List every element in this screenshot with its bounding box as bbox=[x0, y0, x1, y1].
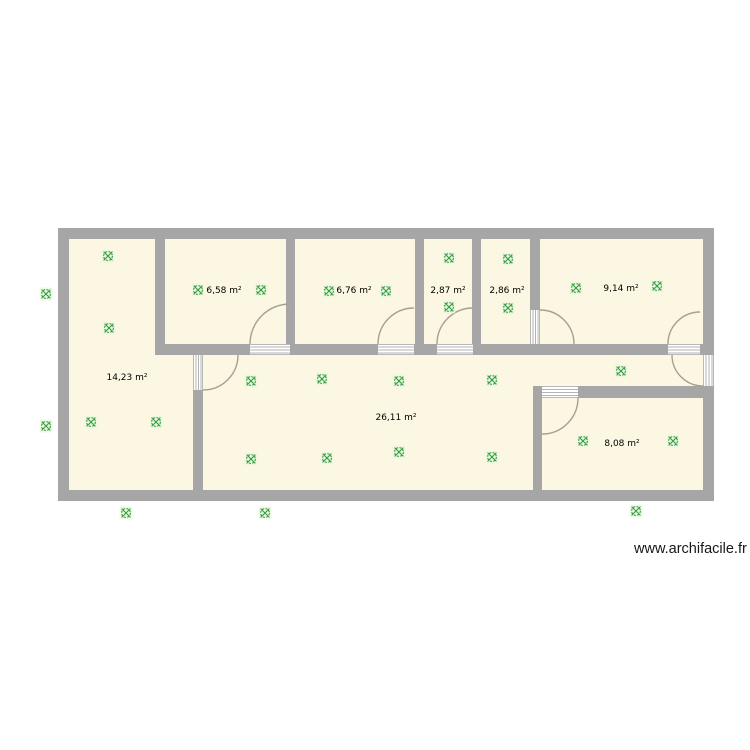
outlet-symbol[interactable] bbox=[486, 374, 499, 387]
outlet-symbol[interactable] bbox=[667, 435, 680, 448]
room-area-label: 2,87 m² bbox=[430, 286, 466, 296]
outlet-symbol[interactable] bbox=[316, 373, 329, 386]
outlet-symbol[interactable] bbox=[85, 416, 98, 429]
wall-corridor-top[interactable] bbox=[155, 344, 703, 355]
outlet-symbol[interactable] bbox=[443, 252, 456, 265]
outlet-symbol[interactable] bbox=[577, 435, 590, 448]
wall-room1-room2[interactable] bbox=[155, 239, 165, 344]
room-area-label: 6,58 m² bbox=[206, 286, 242, 296]
door-opening-room3[interactable] bbox=[378, 345, 414, 354]
wall-room7-room8[interactable] bbox=[533, 386, 542, 490]
outlet-symbol[interactable] bbox=[323, 285, 336, 298]
outlet-symbol[interactable] bbox=[393, 375, 406, 388]
outlet-symbol[interactable] bbox=[120, 507, 133, 520]
outlet-symbol[interactable] bbox=[380, 285, 393, 298]
door-opening-room8[interactable] bbox=[542, 387, 578, 397]
outlet-symbol[interactable] bbox=[443, 301, 456, 314]
outlet-symbol[interactable] bbox=[502, 302, 515, 315]
outlet-symbol[interactable] bbox=[615, 365, 628, 378]
outlet-symbol[interactable] bbox=[486, 451, 499, 464]
outlet-symbol[interactable] bbox=[40, 420, 53, 433]
door-opening-room5-room6[interactable] bbox=[531, 310, 539, 344]
outlet-symbol[interactable] bbox=[150, 416, 163, 429]
wall-exterior-bottom[interactable] bbox=[58, 490, 714, 501]
door-opening-exterior-right[interactable] bbox=[704, 355, 713, 386]
watermark: www.archifacile.fr bbox=[634, 541, 750, 559]
outlet-symbol[interactable] bbox=[255, 284, 268, 297]
outlet-symbol[interactable] bbox=[259, 507, 272, 520]
wall-room4-room5[interactable] bbox=[472, 239, 481, 344]
outlet-symbol[interactable] bbox=[40, 288, 53, 301]
floorplan-stage: 14,23 m²6,58 m²6,76 m²2,87 m²2,86 m²9,14… bbox=[0, 0, 750, 750]
door-opening-room2[interactable] bbox=[250, 345, 290, 354]
outlet-symbol[interactable] bbox=[103, 322, 116, 335]
wall-room2-room3[interactable] bbox=[286, 239, 295, 344]
room-area-label: 2,86 m² bbox=[489, 286, 525, 296]
outlet-symbol[interactable] bbox=[245, 453, 258, 466]
wall-exterior-left[interactable] bbox=[58, 228, 69, 501]
door-opening-room1-room7[interactable] bbox=[194, 355, 202, 390]
outlet-symbol[interactable] bbox=[102, 250, 115, 263]
outlet-symbol[interactable] bbox=[630, 505, 643, 518]
wall-room3-room4[interactable] bbox=[415, 239, 424, 344]
outlet-symbol[interactable] bbox=[192, 284, 205, 297]
outlet-symbol[interactable] bbox=[245, 375, 258, 388]
room-area-label: 14,23 m² bbox=[106, 373, 147, 383]
outlet-symbol[interactable] bbox=[321, 452, 334, 465]
room-area-label: 9,14 m² bbox=[603, 284, 639, 294]
outlet-symbol[interactable] bbox=[502, 253, 515, 266]
door-opening-room6-corridor[interactable] bbox=[668, 345, 700, 354]
wall-exterior-top[interactable] bbox=[58, 228, 714, 239]
floorplan-drawing: 14,23 m²6,58 m²6,76 m²2,87 m²2,86 m²9,14… bbox=[0, 0, 750, 750]
door-opening-room4[interactable] bbox=[437, 345, 473, 354]
outlet-symbol[interactable] bbox=[570, 282, 583, 295]
room-area-label: 8,08 m² bbox=[604, 439, 640, 449]
outlet-symbol[interactable] bbox=[393, 446, 406, 459]
room-area-label: 6,76 m² bbox=[336, 286, 372, 296]
room-area-label: 26,11 m² bbox=[375, 413, 416, 423]
outlet-symbol[interactable] bbox=[651, 280, 664, 293]
